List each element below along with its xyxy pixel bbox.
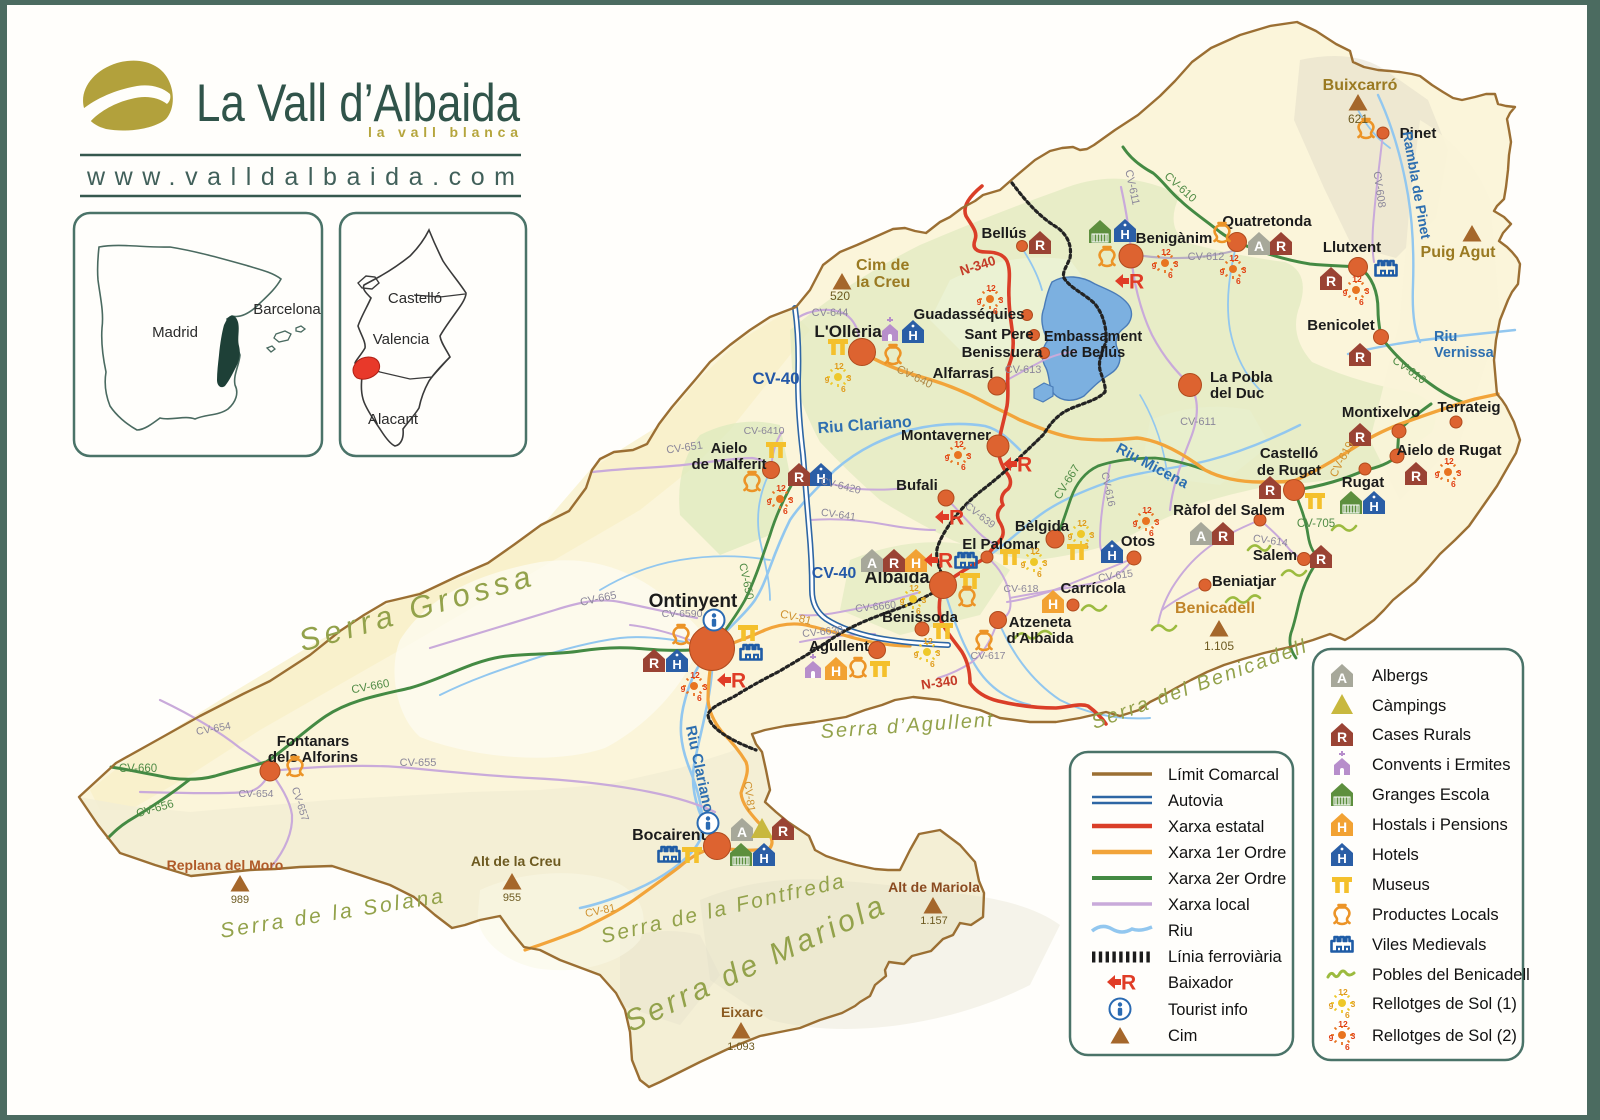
- svg-text:de Malferit: de Malferit: [691, 456, 766, 473]
- svg-text:Fontanars: Fontanars: [277, 733, 350, 750]
- svg-text:del Duc: del Duc: [1210, 385, 1264, 402]
- svg-text:Bèlgida: Bèlgida: [1015, 518, 1070, 535]
- svg-text:Baixador: Baixador: [1168, 974, 1234, 992]
- svg-text:Replana del Moro: Replana del Moro: [167, 857, 284, 873]
- svg-text:CV-6590: CV-6590: [662, 608, 703, 620]
- svg-text:Xarxa 2er Ordre: Xarxa 2er Ordre: [1168, 870, 1286, 888]
- svg-text:621: 621: [1348, 112, 1368, 126]
- svg-text:CV-617: CV-617: [970, 650, 1005, 662]
- svg-text:Castelló: Castelló: [1260, 445, 1318, 462]
- svg-text:L'Olleria: L'Olleria: [814, 322, 882, 341]
- svg-text:Bocairent: Bocairent: [632, 827, 706, 844]
- svg-text:Beniatjar: Beniatjar: [1212, 573, 1276, 590]
- svg-text:Aielo: Aielo: [711, 440, 748, 457]
- svg-text:Rellotges de Sol (1): Rellotges de Sol (1): [1372, 995, 1517, 1013]
- svg-text:Benissuera: Benissuera: [962, 344, 1044, 361]
- svg-text:Riu: Riu: [1434, 329, 1457, 345]
- svg-text:Barcelona: Barcelona: [253, 301, 321, 318]
- svg-text:Bellús: Bellús: [981, 225, 1026, 242]
- svg-text:Buixcarró: Buixcarró: [1323, 77, 1398, 94]
- svg-text:Montixelvo: Montixelvo: [1342, 404, 1420, 421]
- svg-text:520: 520: [830, 289, 850, 303]
- svg-text:CV-618: CV-618: [1003, 583, 1038, 595]
- svg-text:Cim de: Cim de: [856, 257, 909, 274]
- svg-text:CV-613: CV-613: [1005, 364, 1042, 376]
- svg-text:CV-655: CV-655: [400, 757, 437, 769]
- svg-text:Límit Comarcal: Límit Comarcal: [1168, 766, 1279, 784]
- svg-text:Valencia: Valencia: [373, 331, 430, 348]
- svg-text:Madrid: Madrid: [152, 324, 198, 341]
- svg-text:Bufali: Bufali: [896, 477, 938, 494]
- svg-text:Benicolet: Benicolet: [1307, 317, 1375, 334]
- svg-text:Rugat: Rugat: [1342, 474, 1385, 491]
- svg-text:Sant Pere: Sant Pere: [964, 326, 1033, 343]
- svg-text:Puig Agut: Puig Agut: [1421, 244, 1497, 261]
- svg-text:Vernissa: Vernissa: [1434, 345, 1495, 361]
- svg-text:Guadasséquies: Guadasséquies: [914, 306, 1025, 323]
- svg-text:Terrateig: Terrateig: [1437, 399, 1500, 416]
- svg-text:Castelló: Castelló: [388, 290, 442, 307]
- svg-text:Línia ferroviària: Línia ferroviària: [1168, 948, 1283, 966]
- svg-text:Salem: Salem: [1253, 547, 1297, 564]
- svg-text:Xarxa 1er Ordre: Xarxa 1er Ordre: [1168, 844, 1286, 862]
- svg-text:955: 955: [503, 892, 521, 904]
- svg-text:Alfarrasí: Alfarrasí: [933, 365, 995, 382]
- svg-text:de Rugat: de Rugat: [1257, 462, 1321, 479]
- svg-text:Autovia: Autovia: [1168, 792, 1224, 810]
- svg-text:Viles Medievals: Viles Medievals: [1372, 936, 1486, 954]
- svg-text:Granges Escola: Granges Escola: [1372, 786, 1490, 804]
- svg-text:CV-612: CV-612: [1188, 251, 1225, 263]
- svg-text:Cim: Cim: [1168, 1027, 1197, 1045]
- svg-text:Benicadell: Benicadell: [1175, 600, 1255, 617]
- svg-text:Hostals i Pensions: Hostals i Pensions: [1372, 816, 1508, 834]
- svg-text:Montaverner: Montaverner: [901, 427, 991, 444]
- svg-text:dels Alforins: dels Alforins: [268, 749, 358, 766]
- svg-text:Quatretonda: Quatretonda: [1222, 213, 1312, 230]
- svg-text:Alt de Mariola: Alt de Mariola: [888, 879, 980, 895]
- svg-text:la Creu: la Creu: [856, 274, 910, 291]
- svg-text:989: 989: [231, 894, 249, 906]
- svg-text:CV-660: CV-660: [119, 763, 157, 775]
- svg-text:Agullent: Agullent: [809, 638, 869, 655]
- svg-text:Càmpings: Càmpings: [1372, 697, 1446, 715]
- svg-text:Atzeneta: Atzeneta: [1009, 614, 1072, 631]
- svg-text:CV-705: CV-705: [1297, 518, 1335, 530]
- svg-text:1.093: 1.093: [727, 1041, 755, 1053]
- svg-text:Albergs: Albergs: [1372, 667, 1428, 685]
- svg-text:Convents i Ermites: Convents i Ermites: [1372, 756, 1510, 774]
- svg-text:1.157: 1.157: [920, 915, 948, 927]
- svg-text:Eixarc: Eixarc: [721, 1004, 763, 1020]
- svg-text:CV-6410: CV-6410: [744, 425, 785, 437]
- svg-text:Carrícola: Carrícola: [1060, 580, 1126, 597]
- svg-text:d'Albaida: d'Albaida: [1007, 630, 1075, 647]
- svg-text:CV-40: CV-40: [752, 369, 799, 388]
- svg-text:CV-40: CV-40: [812, 565, 857, 582]
- svg-text:Tourist info: Tourist info: [1168, 1001, 1248, 1019]
- svg-text:Xarxa estatal: Xarxa estatal: [1168, 818, 1264, 836]
- svg-text:CV-644: CV-644: [812, 307, 849, 319]
- svg-text:Rellotges de Sol (2): Rellotges de Sol (2): [1372, 1027, 1517, 1045]
- svg-text:Riu: Riu: [1168, 922, 1193, 940]
- svg-text:Ràfol del Salem: Ràfol del Salem: [1173, 502, 1285, 519]
- svg-text:de Bellús: de Bellús: [1061, 345, 1125, 361]
- svg-text:Cases Rurals: Cases Rurals: [1372, 726, 1471, 744]
- svg-text:Pobles del Benicadell: Pobles del Benicadell: [1372, 966, 1530, 984]
- svg-text:La Pobla: La Pobla: [1210, 369, 1273, 386]
- svg-text:CV-611: CV-611: [1180, 416, 1216, 428]
- svg-text:Llutxent: Llutxent: [1323, 239, 1381, 256]
- svg-text:1.105: 1.105: [1204, 639, 1234, 653]
- svg-text:CV-654: CV-654: [238, 788, 273, 800]
- svg-text:Benigànim: Benigànim: [1136, 230, 1213, 247]
- svg-text:Embassament: Embassament: [1044, 329, 1142, 345]
- svg-text:Productes Locals: Productes Locals: [1372, 906, 1499, 924]
- svg-text:Xarxa local: Xarxa local: [1168, 896, 1250, 914]
- svg-text:Alacant: Alacant: [368, 411, 419, 428]
- svg-text:Hotels: Hotels: [1372, 846, 1419, 864]
- svg-text:Museus: Museus: [1372, 876, 1430, 894]
- svg-text:Alt de la Creu: Alt de la Creu: [471, 853, 561, 869]
